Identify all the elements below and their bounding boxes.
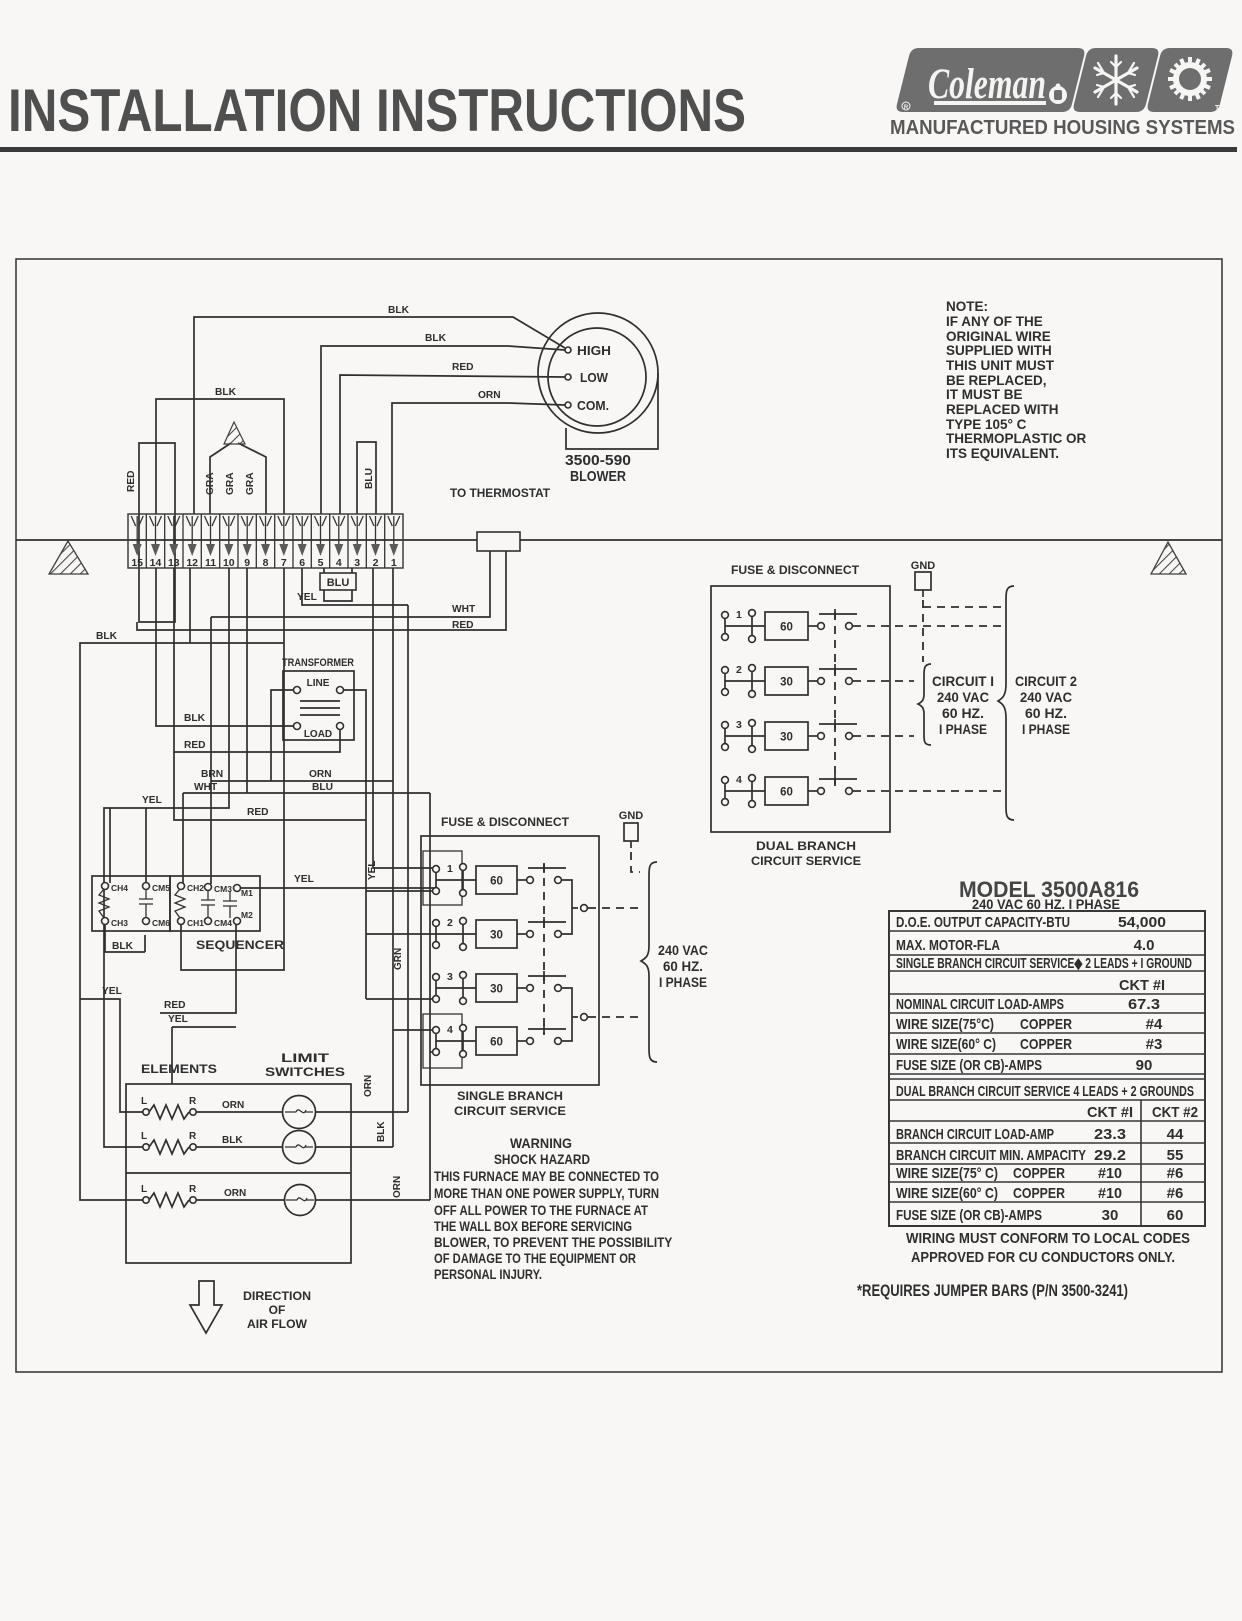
svg-text:DUAL BRANCH: DUAL BRANCH [756, 839, 856, 853]
svg-text:60 HZ.: 60 HZ. [942, 706, 984, 721]
svg-text:I PHASE: I PHASE [939, 722, 987, 737]
svg-text:240 VAC: 240 VAC [658, 943, 708, 958]
svg-text:8: 8 [263, 557, 269, 569]
svg-text:BLOWER: BLOWER [570, 468, 626, 485]
svg-text:BLK: BLK [388, 305, 410, 316]
svg-text:YEL: YEL [168, 1014, 188, 1025]
svg-text:30: 30 [490, 984, 503, 996]
svg-text:11: 11 [205, 557, 216, 569]
svg-text:240 VAC: 240 VAC [1020, 690, 1072, 705]
svg-text:WHT: WHT [452, 604, 476, 615]
svg-text:YEL: YEL [297, 592, 317, 603]
svg-text:INSTALLATION INSTRUCTIONS: INSTALLATION INSTRUCTIONS [8, 77, 746, 144]
svg-text:CH2: CH2 [187, 883, 204, 893]
svg-text:23.3: 23.3 [1094, 1126, 1126, 1143]
svg-text:I PHASE: I PHASE [659, 975, 707, 990]
svg-text:13: 13 [168, 557, 180, 569]
svg-text:7: 7 [281, 557, 287, 569]
svg-text:WHT: WHT [194, 782, 218, 793]
svg-text:BLK: BLK [184, 713, 206, 724]
svg-text:CKT #2: CKT #2 [1152, 1104, 1198, 1121]
svg-text:WIRE SIZE(75°C): WIRE SIZE(75°C) [896, 1016, 994, 1033]
svg-text:SINGLE BRANCH: SINGLE BRANCH [457, 1089, 563, 1103]
svg-text:BLU: BLU [364, 468, 375, 489]
svg-text:R: R [189, 1096, 197, 1107]
svg-text:CKT #I: CKT #I [1119, 977, 1165, 994]
svg-text:OF: OF [269, 1303, 286, 1317]
svg-text:15: 15 [131, 557, 143, 569]
svg-text:R: R [904, 105, 909, 111]
svg-text:3500-590: 3500-590 [565, 452, 631, 469]
svg-text:CIRCUIT 2: CIRCUIT 2 [1015, 674, 1077, 689]
svg-text:ORN: ORN [478, 390, 501, 401]
svg-text:CM6: CM6 [152, 918, 170, 928]
svg-text:L: L [141, 1131, 147, 1142]
svg-text:BLK: BLK [222, 1135, 243, 1146]
svg-text:LINE: LINE [307, 678, 330, 689]
svg-text:10: 10 [223, 557, 235, 569]
svg-text:WIRE SIZE(75° C): WIRE SIZE(75° C) [896, 1165, 998, 1182]
svg-text:6: 6 [299, 557, 305, 569]
svg-text:APPROVED FOR CU CONDUCTORS ONL: APPROVED FOR CU CONDUCTORS ONLY. [911, 1249, 1175, 1266]
svg-text:ORN: ORN [224, 1188, 246, 1199]
svg-text:240 VAC 60 HZ. I PHASE: 240 VAC 60 HZ. I PHASE [972, 897, 1120, 912]
svg-text:HIGH: HIGH [577, 343, 611, 358]
svg-text:COPPER: COPPER [1020, 1036, 1072, 1053]
svg-text:54,000: 54,000 [1118, 914, 1166, 931]
svg-text:CM5: CM5 [152, 883, 170, 893]
svg-text:NOTE: IF ANY OF THE ORIGINAL W: NOTE: IF ANY OF THE ORIGINAL WIRE SUPPLI… [946, 299, 1090, 461]
svg-text:CIRCUIT SERVICE: CIRCUIT SERVICE [751, 854, 861, 868]
svg-text:GRA: GRA [205, 472, 216, 495]
svg-text:2: 2 [447, 917, 453, 929]
svg-text:WIRING MUST CONFORM TO LOCAL C: WIRING MUST CONFORM TO LOCAL CODES [906, 1230, 1190, 1247]
svg-text:GRA: GRA [225, 472, 236, 495]
svg-text:30: 30 [780, 677, 793, 689]
svg-text:TO THERMOSTAT: TO THERMOSTAT [450, 486, 551, 500]
svg-text:WIRE SIZE(60° C): WIRE SIZE(60° C) [896, 1036, 996, 1053]
svg-text:2: 2 [736, 664, 742, 676]
svg-text:SINGLE BRANCH CIRCUIT SERVICE◆: SINGLE BRANCH CIRCUIT SERVICE◆ 2 LEADS +… [896, 955, 1192, 972]
svg-text:29.2: 29.2 [1094, 1147, 1126, 1164]
svg-text:CIRCUIT I: CIRCUIT I [932, 674, 994, 689]
svg-text:GRN: GRN [393, 948, 404, 970]
svg-text:CM4: CM4 [214, 918, 232, 928]
svg-text:#4: #4 [1146, 1016, 1163, 1033]
svg-text:3: 3 [354, 557, 360, 569]
svg-text:BRANCH CIRCUIT MIN. AMPACITY: BRANCH CIRCUIT MIN. AMPACITY [896, 1147, 1086, 1164]
svg-text:30: 30 [1102, 1207, 1119, 1224]
svg-text:WIRE SIZE(60° C): WIRE SIZE(60° C) [896, 1185, 998, 1202]
svg-text:60: 60 [490, 1037, 503, 1049]
svg-text:BLU: BLU [327, 577, 350, 589]
svg-text:ORN: ORN [309, 769, 332, 780]
svg-text:ELEMENTS: ELEMENTS [141, 1062, 217, 1076]
svg-text:*REQUIRES JUMPER BARS (P/N 350: *REQUIRES JUMPER BARS (P/N 3500-3241) [857, 1281, 1128, 1300]
svg-text:44: 44 [1167, 1126, 1184, 1143]
svg-text:60 HZ.: 60 HZ. [1025, 706, 1067, 721]
svg-text:60: 60 [1167, 1207, 1184, 1224]
svg-text:GND: GND [911, 560, 936, 572]
svg-text:67.3: 67.3 [1128, 996, 1160, 1013]
svg-text:NOMINAL CIRCUIT LOAD-AMPS: NOMINAL CIRCUIT LOAD-AMPS [896, 996, 1064, 1013]
svg-text:60 HZ.: 60 HZ. [663, 959, 703, 974]
svg-text:WARNING: WARNING [510, 1136, 572, 1151]
svg-text:YEL: YEL [294, 874, 314, 885]
svg-text:YEL: YEL [142, 795, 162, 806]
svg-text:SEQUENCER: SEQUENCER [196, 938, 284, 952]
svg-text:DIRECTION: DIRECTION [243, 1291, 311, 1303]
svg-text:D.O.E. OUTPUT CAPACITY-BTU: D.O.E. OUTPUT CAPACITY-BTU [896, 914, 1070, 931]
svg-text:CIRCUIT SERVICE: CIRCUIT SERVICE [454, 1104, 566, 1118]
svg-text:ORN: ORN [392, 1176, 403, 1198]
svg-text:30: 30 [780, 732, 793, 744]
svg-text:1: 1 [447, 863, 453, 875]
svg-text:BRN: BRN [201, 769, 223, 780]
svg-text:4: 4 [736, 774, 742, 786]
svg-text:R: R [189, 1184, 197, 1195]
svg-text:4.0: 4.0 [1134, 937, 1155, 954]
svg-text:ORN: ORN [363, 1075, 374, 1097]
svg-text:BRANCH CIRCUIT LOAD-AMP: BRANCH CIRCUIT LOAD-AMP [896, 1126, 1054, 1143]
svg-text:LOW: LOW [580, 370, 609, 385]
svg-text:COPPER: COPPER [1013, 1185, 1065, 1202]
svg-text:FUSE SIZE (OR CB)-AMPS: FUSE SIZE (OR CB)-AMPS [896, 1207, 1042, 1224]
svg-text:BLK: BLK [376, 1121, 387, 1142]
svg-text:#3: #3 [1146, 1036, 1163, 1053]
svg-text:14: 14 [150, 557, 162, 569]
svg-text:SHOCK HAZARD: SHOCK HAZARD [494, 1152, 590, 1167]
svg-text:Coleman: Coleman [928, 61, 1046, 108]
svg-text:#10: #10 [1098, 1165, 1122, 1182]
svg-text:LOAD: LOAD [304, 729, 332, 740]
svg-text:4: 4 [336, 557, 342, 569]
svg-text:FUSE & DISCONNECT: FUSE & DISCONNECT [731, 563, 860, 577]
svg-text:LIMIT: LIMIT [281, 1051, 330, 1065]
svg-text:#6: #6 [1167, 1185, 1184, 1202]
svg-text:30: 30 [490, 930, 503, 942]
svg-text:CKT #I: CKT #I [1087, 1104, 1133, 1121]
svg-text:ORN: ORN [222, 1100, 244, 1111]
svg-text:1: 1 [736, 609, 742, 621]
svg-text:GND: GND [619, 810, 644, 822]
svg-text:BLU: BLU [312, 782, 333, 793]
svg-text:60: 60 [780, 622, 793, 634]
svg-text:TM: TM [1215, 105, 1225, 112]
svg-text:RED: RED [184, 740, 206, 751]
svg-text:3: 3 [736, 719, 742, 731]
svg-text:RED: RED [247, 807, 269, 818]
svg-text:#6: #6 [1167, 1165, 1184, 1182]
svg-text:5: 5 [318, 557, 324, 569]
svg-text:COPPER: COPPER [1013, 1165, 1065, 1182]
svg-text:THIS FURNACE MAY BE CONNECTED: THIS FURNACE MAY BE CONNECTED TO MORE TH… [434, 1169, 676, 1282]
svg-text:CH3: CH3 [111, 918, 128, 928]
svg-text:1: 1 [391, 557, 397, 569]
svg-text:55: 55 [1167, 1147, 1184, 1164]
svg-text:9: 9 [244, 557, 250, 569]
svg-text:#10: #10 [1098, 1185, 1122, 1202]
svg-text:I PHASE: I PHASE [1022, 722, 1070, 737]
svg-text:L: L [141, 1184, 147, 1195]
svg-text:FUSE SIZE (OR CB)-AMPS: FUSE SIZE (OR CB)-AMPS [896, 1057, 1042, 1074]
svg-text:BLK: BLK [96, 631, 118, 642]
svg-text:12: 12 [186, 557, 198, 569]
svg-text:DUAL BRANCH CIRCUIT SERVICE 4: DUAL BRANCH CIRCUIT SERVICE 4 LEADS + 2 … [896, 1083, 1194, 1100]
svg-text:BLK: BLK [425, 333, 447, 344]
svg-text:COPPER: COPPER [1020, 1016, 1072, 1033]
svg-text:90: 90 [1136, 1057, 1153, 1074]
svg-text:M2: M2 [241, 910, 253, 920]
svg-text:3: 3 [447, 971, 453, 983]
svg-text:RED: RED [452, 620, 474, 631]
svg-text:YEL: YEL [102, 986, 122, 997]
svg-text:AIR FLOW: AIR FLOW [247, 1319, 307, 1331]
svg-text:RED: RED [126, 470, 137, 492]
svg-text:RED: RED [452, 362, 474, 373]
svg-text:240 VAC: 240 VAC [937, 690, 989, 705]
svg-text:CH1: CH1 [187, 918, 204, 928]
svg-text:2: 2 [373, 557, 379, 569]
svg-text:MANUFACTURED HOUSING SYSTEMS: MANUFACTURED HOUSING SYSTEMS [890, 117, 1235, 139]
svg-text:FUSE & DISCONNECT: FUSE & DISCONNECT [441, 815, 570, 829]
svg-text:TRANSFORMER: TRANSFORMER [282, 657, 354, 669]
svg-text:L: L [141, 1096, 147, 1107]
svg-text:MAX. MOTOR-FLA: MAX. MOTOR-FLA [896, 937, 1000, 954]
svg-text:M1: M1 [241, 888, 253, 898]
svg-text:GRA: GRA [245, 472, 256, 495]
svg-text:R: R [189, 1131, 197, 1142]
svg-text:CH4: CH4 [111, 883, 128, 893]
svg-text:BLK: BLK [215, 387, 237, 398]
svg-text:4: 4 [447, 1024, 453, 1036]
svg-text:RED: RED [164, 1000, 186, 1011]
svg-text:COM.: COM. [577, 398, 609, 413]
svg-text:60: 60 [490, 876, 503, 888]
svg-text:BLK: BLK [112, 941, 134, 952]
svg-text:60: 60 [780, 787, 793, 799]
svg-text:SWITCHES: SWITCHES [265, 1065, 345, 1079]
